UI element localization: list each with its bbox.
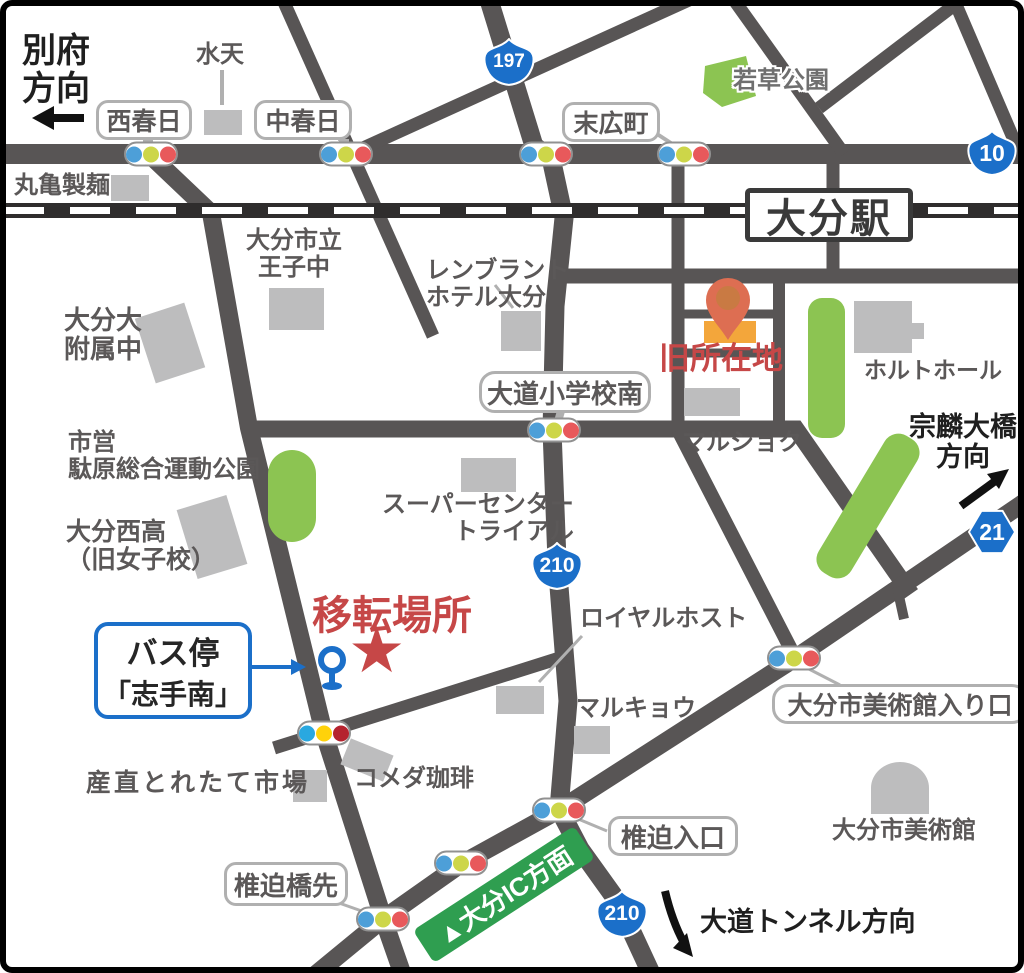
nishi-high-line2: （旧女子校） (66, 546, 216, 574)
omichi-minami-label: 大道小学校南 (487, 374, 643, 411)
suiten-label: 水天 (196, 42, 244, 69)
traffic-light (532, 798, 586, 823)
building-marukyo (574, 726, 610, 754)
road-diagonal-north (283, 6, 433, 336)
road-topright-b (819, 6, 961, 108)
oji-school-label: 大分市立 王子中 (246, 228, 342, 282)
sanchoku-label: 産直とれたて市場 (86, 769, 310, 797)
building-holt-hall (854, 301, 924, 353)
holt-hall-label: ホルトホール (864, 358, 1002, 384)
boxed-label-omichi-minami: 大道小学校南 (479, 371, 651, 413)
beppu-direction-label: 別府 方向 (22, 32, 90, 108)
nishi-high-label: 大分西高 （旧女子校） (66, 518, 216, 574)
signal-yellow-dot (676, 146, 692, 162)
sorin-line2: 方向 (909, 442, 1017, 472)
signal-yellow-dot (546, 422, 562, 438)
traffic-light (356, 907, 410, 932)
signal-red-dot (470, 855, 486, 871)
nishi-high-line1: 大分西高 (66, 518, 216, 546)
boxed-label-museum-entrance: 大分市美術館入り口 (772, 684, 1024, 724)
nishikasuga-label: 西春日 (106, 102, 181, 138)
bus-stop-line2: 「志手南」 (103, 673, 243, 713)
building-museum-dome (871, 762, 929, 814)
relocation-star-icon: ★ (348, 618, 405, 682)
signal-blue-dot (126, 146, 142, 162)
boxed-label-suehirocho: 末広町 (562, 102, 660, 142)
building-royal-host (496, 686, 544, 714)
oita-station-label: 大分駅 (766, 186, 892, 244)
signal-yellow-dot (551, 802, 567, 818)
route-number-21: 21 (968, 509, 1016, 555)
route-number-10: 10 (966, 130, 1018, 176)
traffic-light (767, 646, 821, 671)
bus-stop-icon (321, 649, 343, 690)
royal-host-label: ロイヤルホスト (580, 606, 747, 633)
building-oji-school (269, 288, 324, 330)
building-fuzoku-school (135, 303, 205, 384)
oita-station-box: 大分駅 (745, 188, 913, 242)
signal-blue-dot (358, 911, 374, 927)
building-marushoku (684, 388, 740, 416)
tunnel-direction-label: 大道トンネル方向 (700, 907, 915, 937)
signal-red-dot (355, 146, 371, 162)
signal-yellow-dot (538, 146, 554, 162)
signal-yellow-dot (338, 146, 354, 162)
beppu-line2: 方向 (22, 70, 90, 108)
museum-entrance-label: 大分市美術館入り口 (787, 686, 1012, 722)
bus-stop-line1: バス停 (127, 628, 220, 673)
signal-red-dot (568, 802, 584, 818)
route-shield-210-south: 210 (595, 890, 649, 938)
tunnel-arrow-shaft (665, 891, 684, 943)
beppu-line1: 別府 (22, 32, 90, 70)
traffic-light (319, 142, 373, 167)
shiei-line1: 市営 (68, 430, 260, 457)
signal-red-dot (693, 146, 709, 162)
rembrandt-line1: レンブラント (426, 258, 569, 285)
dabaru-park-label: 市営 駄原総合運動公園 (68, 430, 260, 484)
traffic-light (519, 142, 573, 167)
bus-stop-callout: バス停 「志手南」 (94, 622, 252, 719)
traffic-light (527, 418, 581, 443)
sorin-bridge-direction-label: 宗麟大橋 方向 (909, 412, 1017, 472)
suehirocho-label: 末広町 (573, 104, 648, 140)
access-map: 197 10 210 210 21 大分駅 西春日 中春日 末広町 大道小学校南… (0, 0, 1024, 973)
pin-inner-circle (716, 286, 740, 310)
boxed-label-shiisako-entrance: 椎迫入口 (608, 816, 738, 856)
sorin-arrow-shaft (961, 479, 998, 506)
shiisako-bridge-label: 椎迫橋先 (234, 866, 338, 903)
former-site-label: 旧所在地 (659, 342, 783, 377)
fuzoku-line2: 附属中 (64, 335, 142, 364)
museum-label: 大分市美術館 (832, 818, 976, 845)
marukyo-label: マルキョウ (576, 696, 696, 723)
traffic-light (434, 851, 488, 876)
signal-blue-dot (299, 725, 315, 741)
traffic-light (124, 142, 178, 167)
building-rembrandt-hotel (501, 311, 541, 351)
traffic-light (657, 142, 711, 167)
shiisako-entrance-label: 椎迫入口 (621, 818, 725, 855)
marugame-label: 丸亀製麺 (14, 173, 110, 200)
route-number-197: 197 (483, 38, 535, 86)
route-number-210: 210 (530, 542, 584, 590)
building-suiten (204, 110, 242, 135)
signal-red-dot (555, 146, 571, 162)
boxed-label-nishikasuga: 西春日 (96, 100, 192, 140)
signal-blue-dot (659, 146, 675, 162)
route-shield-210-mid: 210 (530, 542, 584, 590)
boxed-label-nakakasuga: 中春日 (254, 100, 352, 140)
fuzoku-line1: 大分大 (64, 306, 142, 335)
signal-red-dot (803, 650, 819, 666)
oji-line1: 大分市立 (246, 228, 342, 255)
building-marugame (111, 175, 149, 201)
fuzoku-school-label: 大分大 附属中 (64, 306, 142, 364)
signal-blue-dot (529, 422, 545, 438)
route-number-210: 210 (595, 890, 649, 938)
komeda-label: コメダ珈琲 (354, 766, 474, 793)
rembrandt-line2: ホテル大分 (426, 285, 569, 312)
signal-red-dot (160, 146, 176, 162)
wakakusa-park-label: 若草公園 (733, 68, 829, 95)
sorin-line1: 宗麟大橋 (909, 412, 1017, 442)
oji-line2: 王子中 (246, 255, 342, 282)
green-strip-1 (808, 298, 845, 438)
route-shield-197: 197 (483, 38, 535, 86)
marushoku-label: マルショク (682, 430, 802, 457)
bus-stop-base (322, 682, 342, 690)
building-trial (461, 458, 516, 492)
signal-blue-dot (436, 855, 452, 871)
boxed-label-shiisako-bridge: 椎迫橋先 (224, 862, 348, 906)
signal-blue-dot (321, 146, 337, 162)
rembrandt-hotel-label: レンブラント ホテル大分 (426, 258, 569, 312)
bus-stop-ring (321, 649, 343, 671)
trial-label: スーパーセンター トライアル (382, 492, 574, 546)
signal-blue-dot (534, 802, 550, 818)
road-stub (897, 587, 904, 619)
beppu-arrow-icon (32, 106, 54, 130)
route-shield-21: 21 (968, 509, 1016, 555)
signal-yellow-dot (143, 146, 159, 162)
signal-yellow-dot (786, 650, 802, 666)
signal-blue-dot (521, 146, 537, 162)
signal-yellow-dot (316, 725, 332, 741)
signal-yellow-dot (453, 855, 469, 871)
traffic-light (297, 721, 351, 746)
trial-line1: スーパーセンター (382, 492, 574, 519)
signal-red-dot (392, 911, 408, 927)
signal-blue-dot (769, 650, 785, 666)
nakakasuga-label: 中春日 (265, 102, 340, 138)
route-shield-10: 10 (966, 130, 1018, 176)
dabaru-park-area (268, 450, 316, 542)
signal-red-dot (333, 725, 349, 741)
signal-yellow-dot (375, 911, 391, 927)
shiei-line2: 駄原総合運動公園 (68, 457, 260, 484)
signal-red-dot (563, 422, 579, 438)
